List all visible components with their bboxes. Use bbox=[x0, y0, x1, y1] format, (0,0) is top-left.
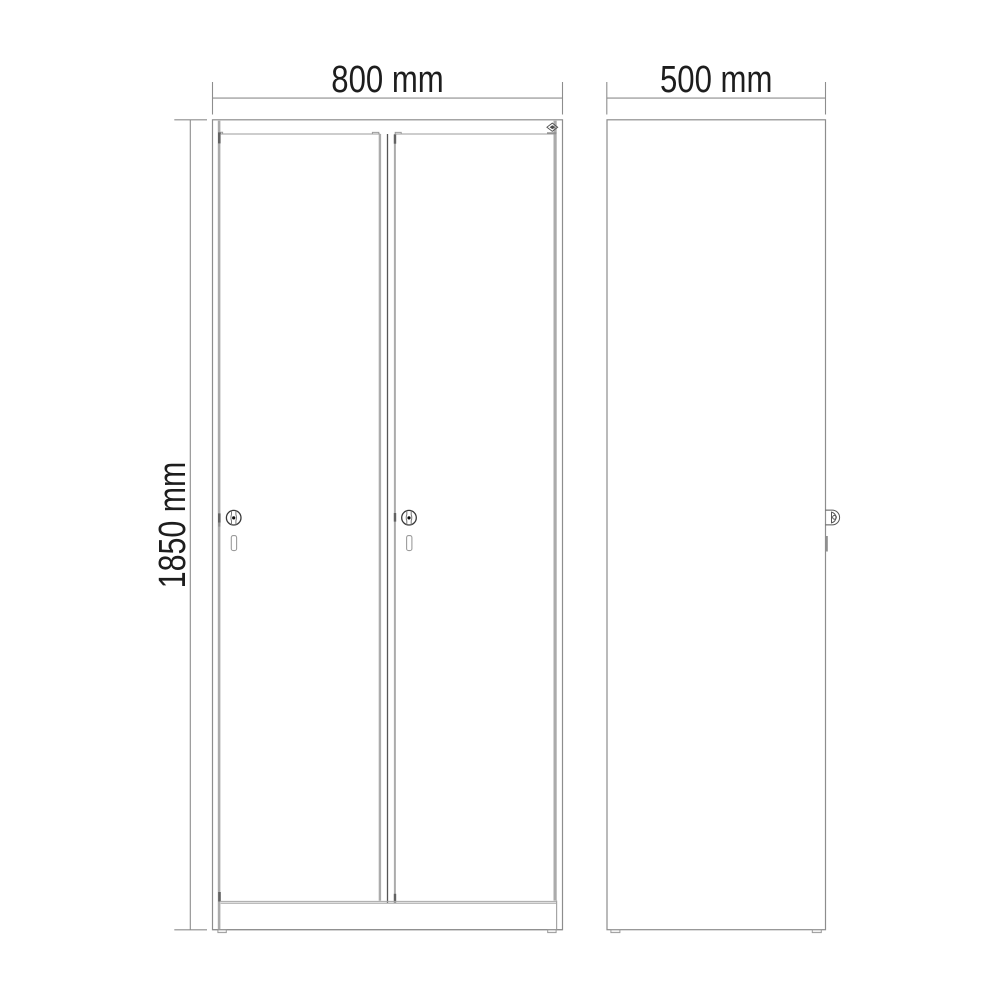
svg-text:800 mm: 800 mm bbox=[331, 58, 444, 101]
svg-text:1850 mm: 1850 mm bbox=[151, 462, 194, 589]
svg-text:500 mm: 500 mm bbox=[660, 58, 773, 101]
